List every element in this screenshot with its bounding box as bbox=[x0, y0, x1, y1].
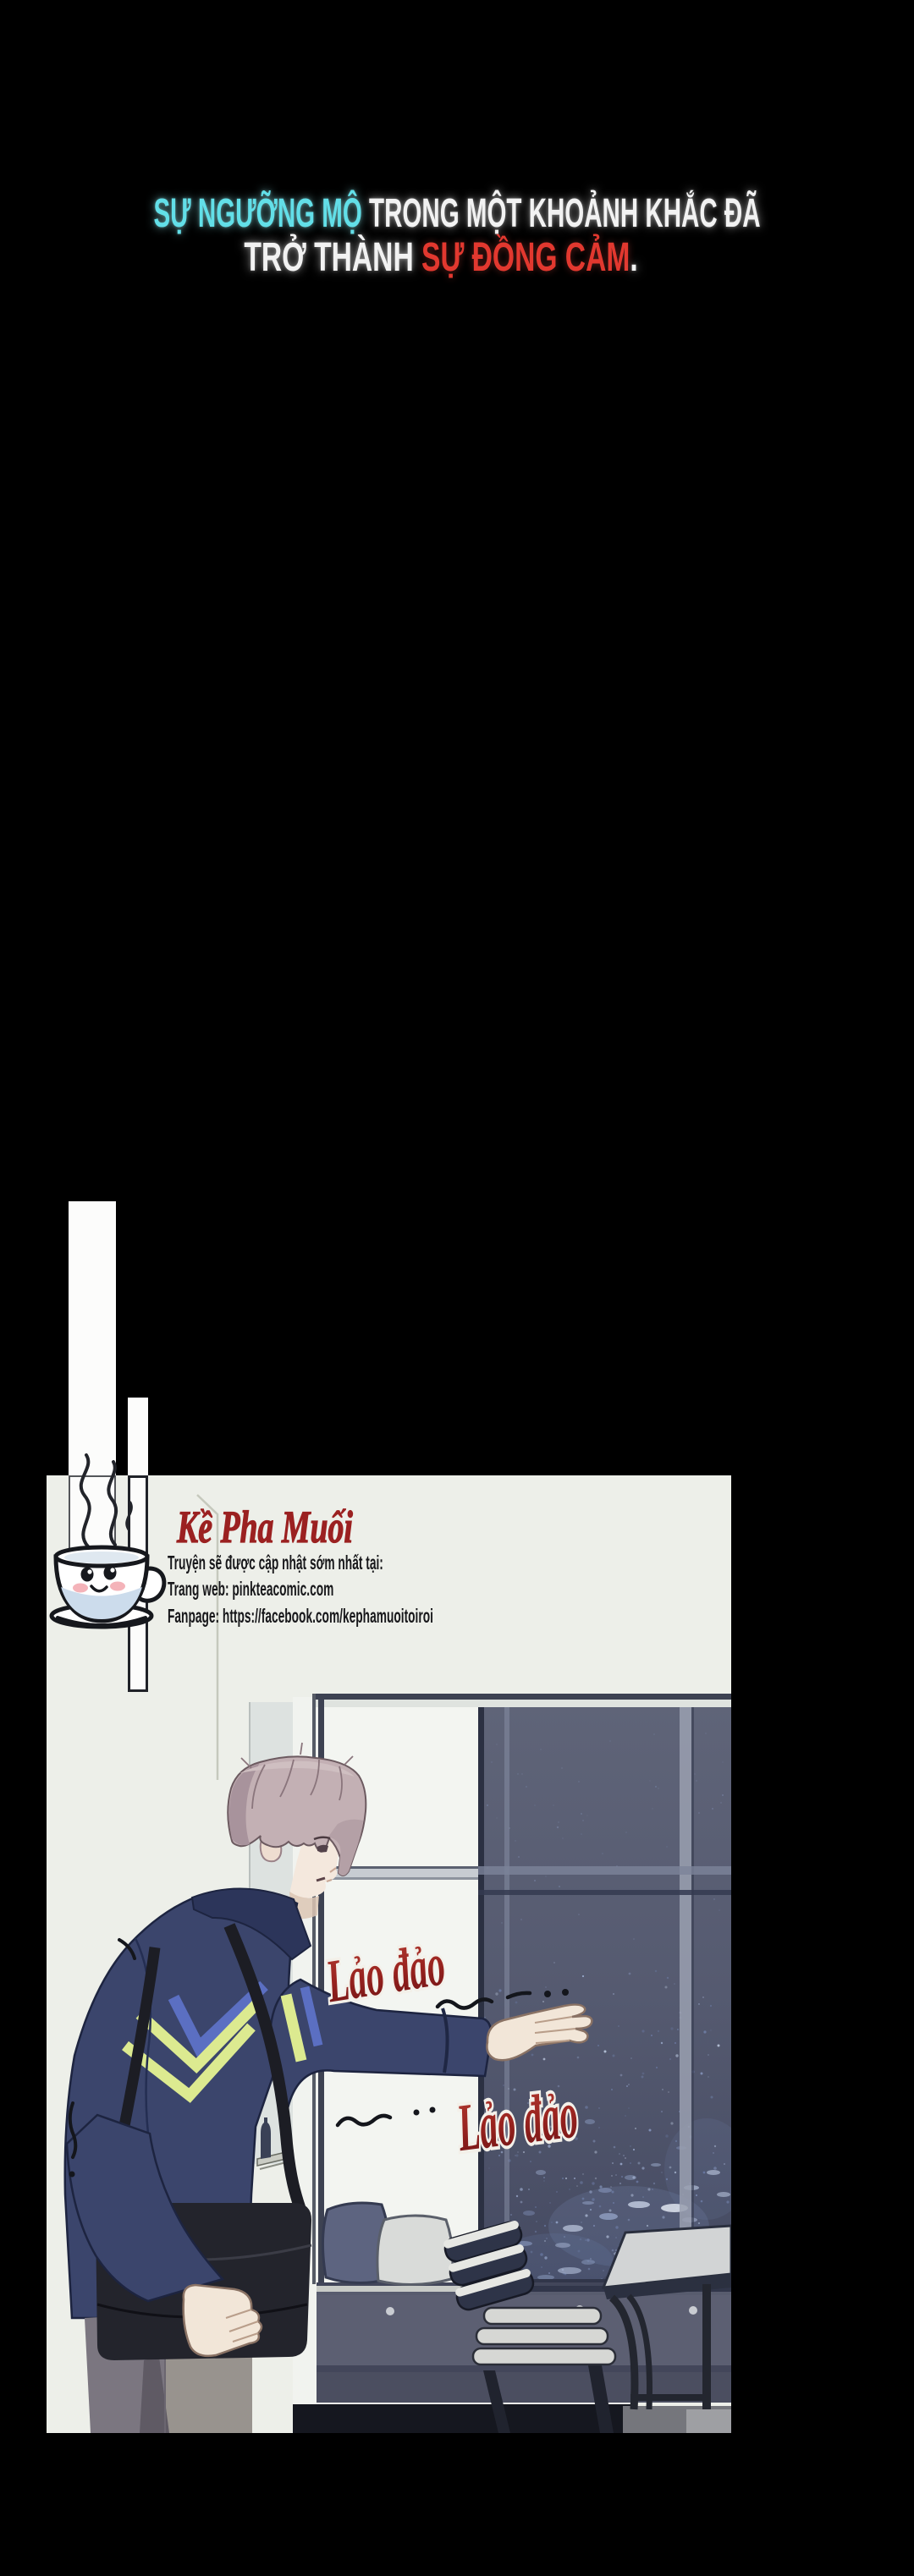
svg-text:Lảo đảo: Lảo đảo bbox=[453, 2078, 581, 2167]
